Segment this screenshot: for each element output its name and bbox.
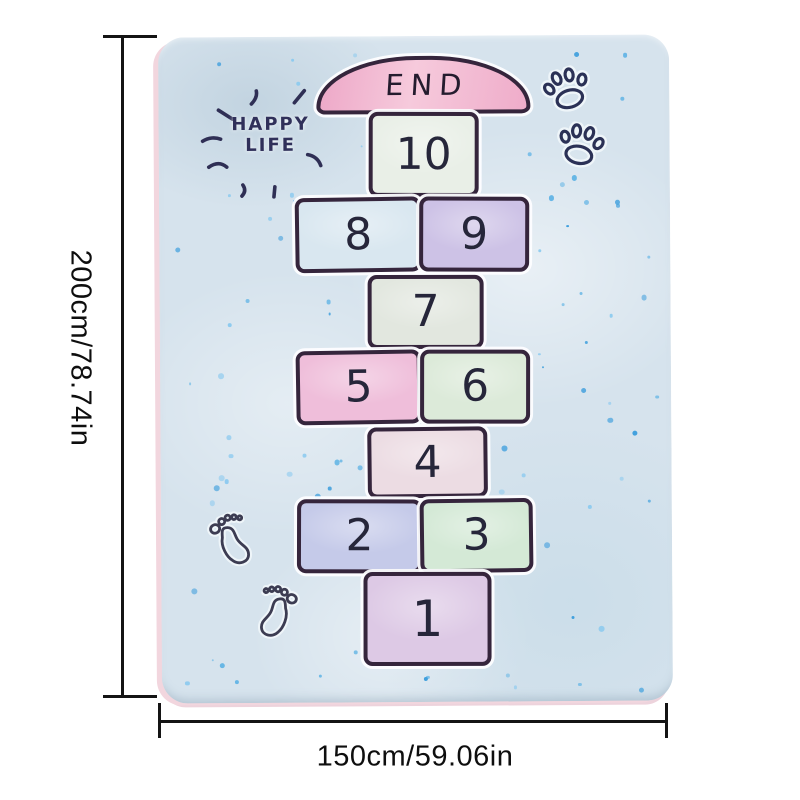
hopscotch-square-1: 1 [363,572,491,666]
hopscotch-square-8: 8 [295,196,422,273]
height-dimension-cap-bottom [103,695,157,698]
product-dimension-image: 200cm/78.74in 150cm/59.06in HAPPY LIFE [0,0,800,800]
hopscotch-square-10: 10 [369,112,479,197]
hopscotch-square-4: 4 [367,426,488,498]
square-number: 5 [344,365,373,409]
width-dimension-label: 150cm/59.06in [317,741,514,774]
hopscotch-square-9: 9 [419,196,529,271]
square-number: 4 [413,440,441,484]
end-label: END [377,68,470,103]
hopscotch-play-mat: HAPPY LIFE [158,34,673,703]
hopscotch-court: END 10 8 9 7 5 6 4 2 [158,34,673,703]
height-dimension-label: 200cm/78.74in [64,250,97,447]
square-number: 7 [412,290,440,334]
height-dimension-line [121,35,124,698]
height-dimension-cap-top [103,35,157,38]
hopscotch-square-7: 7 [368,275,484,349]
square-number: 2 [345,514,373,558]
hopscotch-square-5: 5 [296,349,422,425]
square-number: 1 [412,594,444,644]
end-cap: END [316,55,530,114]
hopscotch-square-2: 2 [297,499,422,573]
width-dimension-cap-left [158,703,161,738]
width-dimension-line [160,720,668,723]
square-number: 10 [396,132,452,176]
square-number: 6 [461,365,489,409]
hopscotch-square-6: 6 [420,350,530,424]
square-number: 9 [460,212,488,256]
square-number: 8 [344,213,373,257]
hopscotch-square-3: 3 [420,498,534,573]
width-dimension-cap-right [665,703,668,738]
square-number: 3 [462,513,491,557]
